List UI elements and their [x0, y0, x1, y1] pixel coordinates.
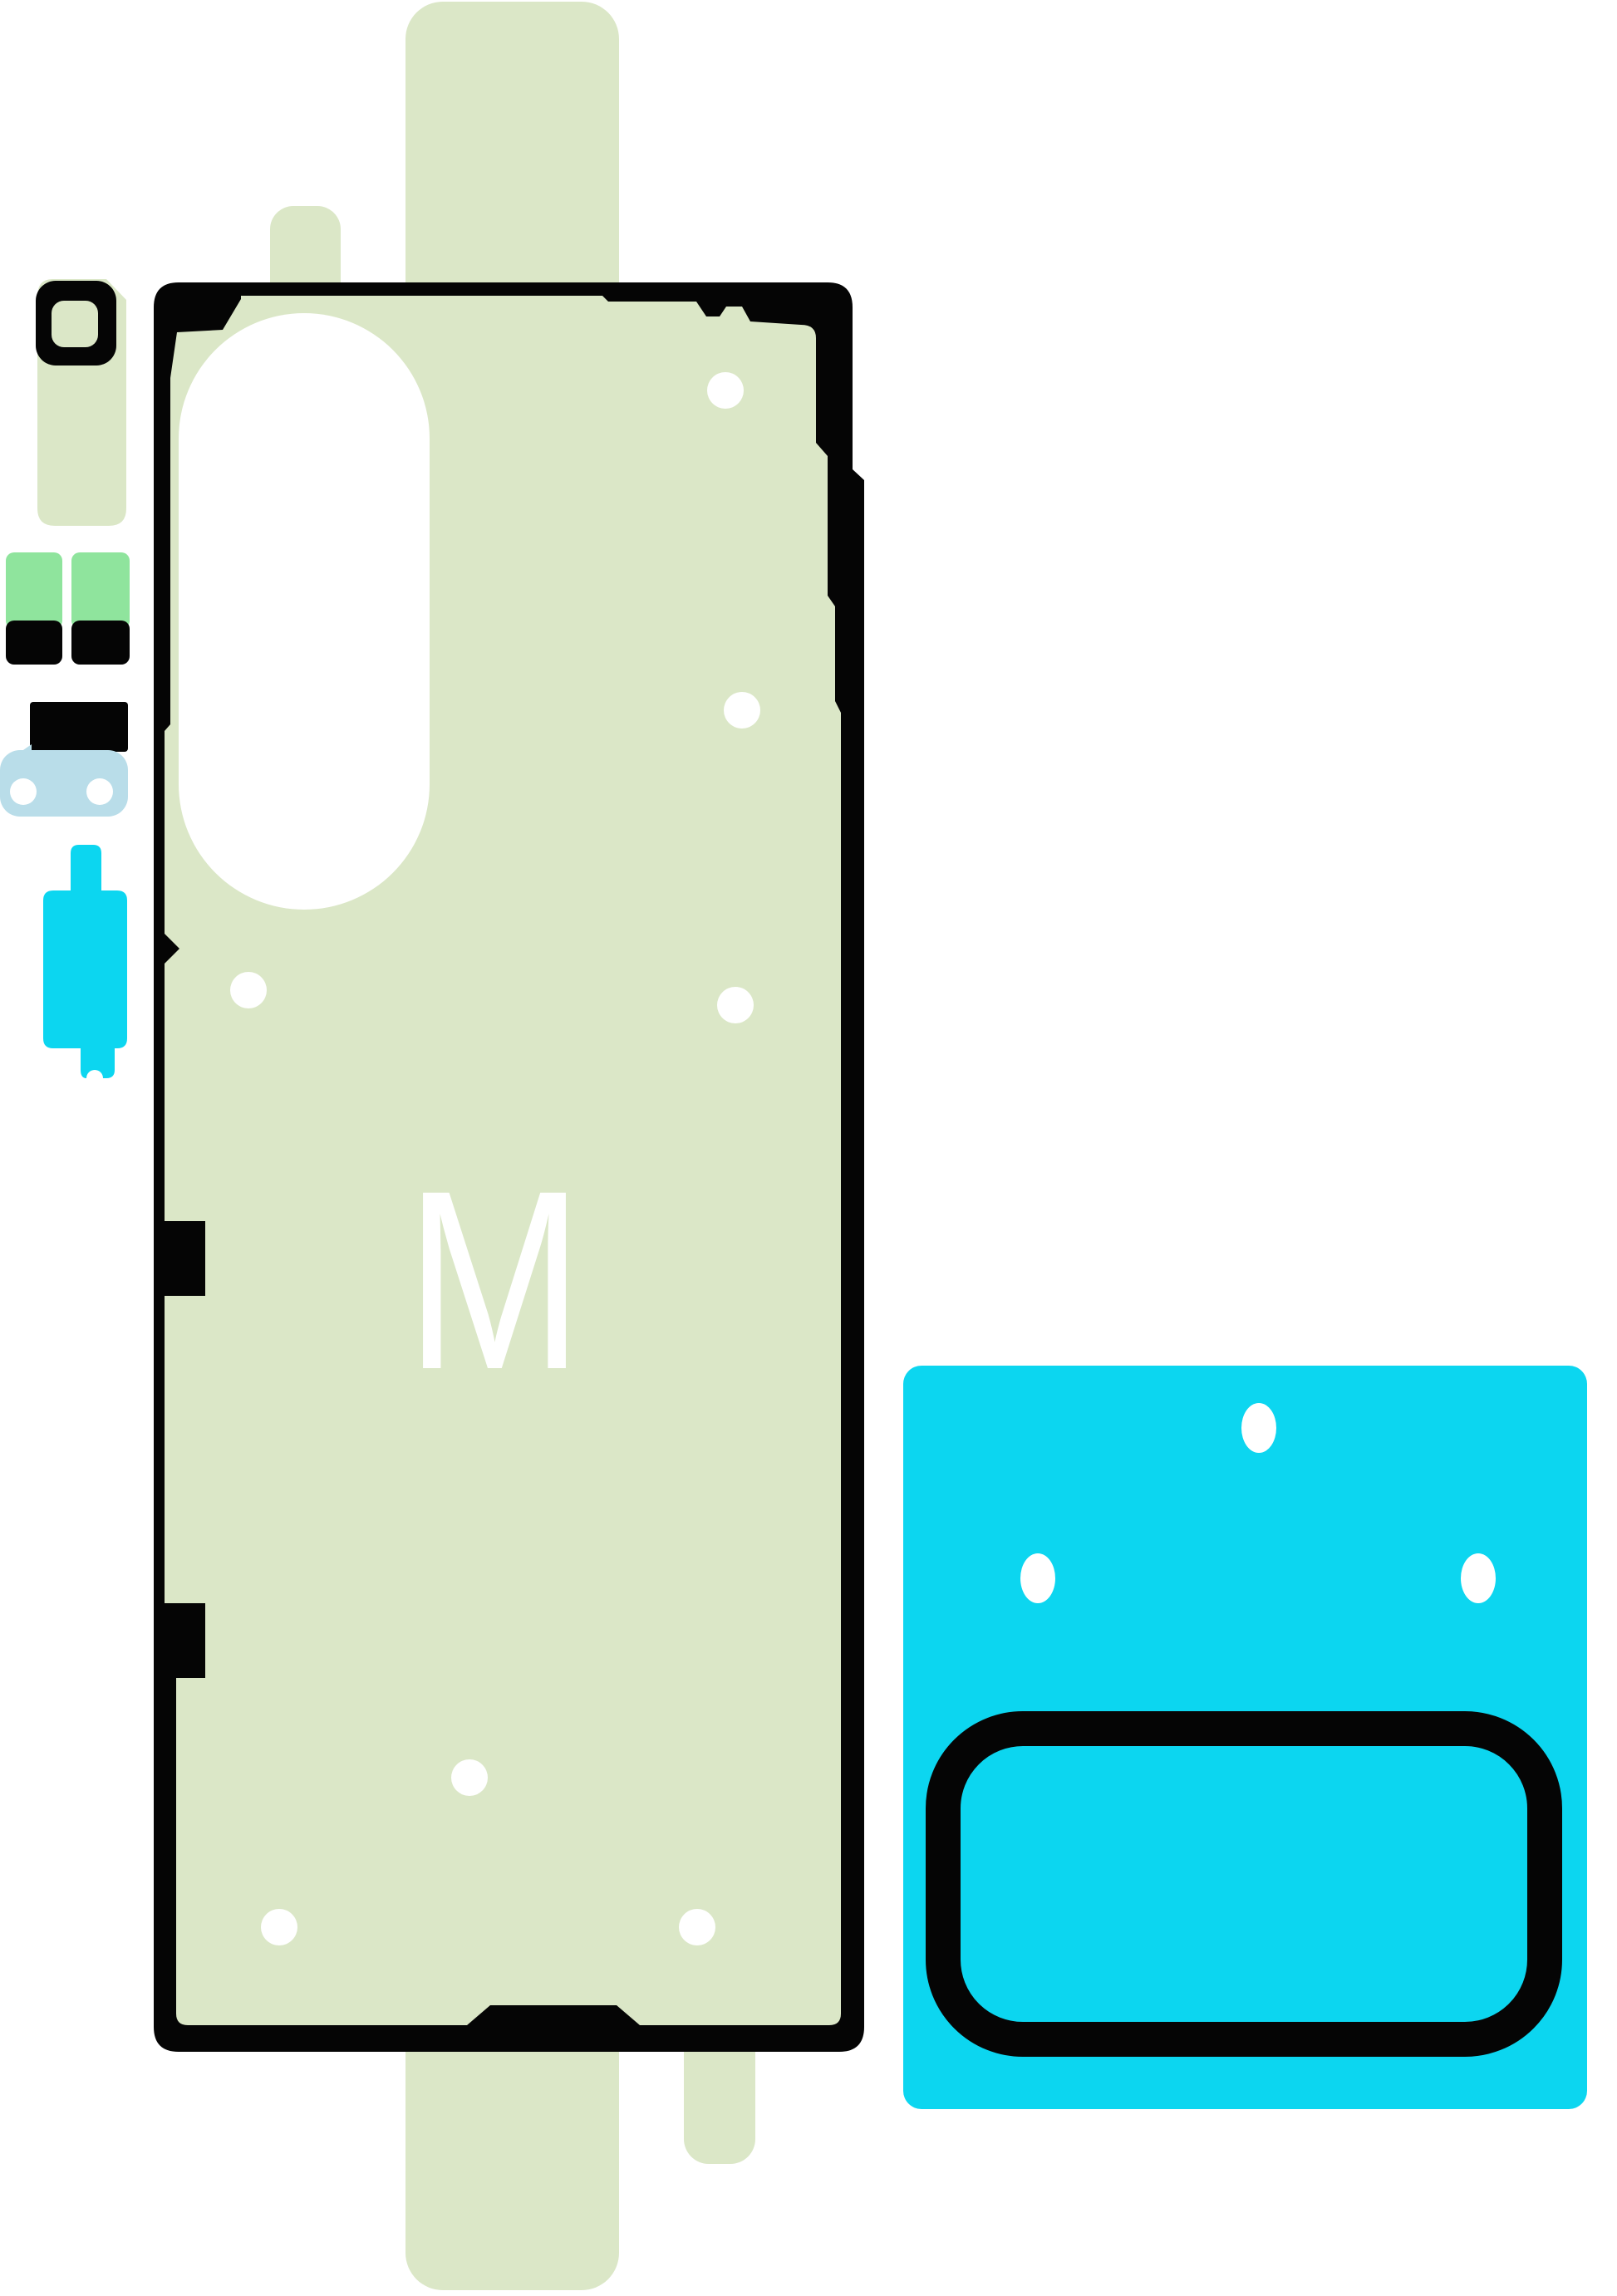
pad-hole: [1020, 1553, 1055, 1603]
bracket-adhesive: [43, 845, 127, 1078]
ring-tag-ring-hole: [52, 301, 98, 347]
sensor-plate-hole: [10, 778, 37, 805]
square-tab-right-green: [71, 552, 130, 629]
pad-hole: [1461, 1553, 1496, 1603]
sheet-marking-letter: M: [405, 1138, 583, 1423]
ring-tag-adhesive: [36, 279, 126, 526]
small-parts-column: [0, 279, 130, 1078]
square-tab-left-green: [6, 552, 62, 629]
alignment-hole: [451, 1759, 488, 1796]
sensor-plate-hole: [86, 778, 113, 805]
alignment-hole: [707, 372, 744, 409]
square-tab-left-black: [6, 621, 62, 665]
camera-island-cutout: [179, 313, 430, 910]
square-tab-right-black: [71, 621, 130, 665]
adhesive-kit-illustration: M: [0, 0, 1617, 2296]
sensor-plate-black-bar: [30, 702, 128, 752]
camera-pad-adhesive: [903, 1366, 1587, 2109]
alignment-hole: [717, 987, 754, 1023]
alignment-hole: [230, 972, 267, 1008]
alignment-hole: [261, 1909, 297, 1945]
sensor-plate-adhesive: [0, 702, 128, 817]
square-tab-adhesives: [6, 552, 130, 665]
main-rear-cover-adhesive-sheet: M: [154, 282, 864, 2052]
bracket-body: [43, 845, 127, 1078]
pad-hole: [1241, 1403, 1276, 1453]
alignment-hole: [724, 692, 760, 729]
alignment-hole: [679, 1909, 715, 1945]
